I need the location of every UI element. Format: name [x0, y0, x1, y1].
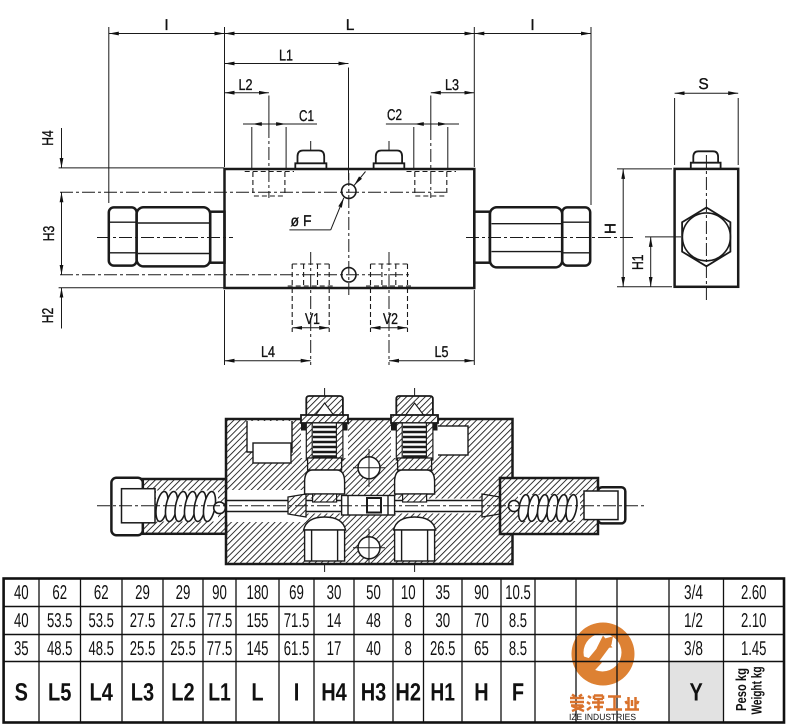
svg-text:L1: L1 [208, 679, 231, 707]
svg-text:H: H [603, 223, 620, 234]
svg-text:C2: C2 [387, 107, 402, 124]
svg-text:I: I [530, 17, 534, 34]
svg-text:Weight kg: Weight kg [750, 667, 766, 715]
svg-text:2.60: 2.60 [741, 582, 767, 604]
svg-text:25.5: 25.5 [170, 638, 196, 660]
svg-text:77.5: 77.5 [207, 610, 233, 632]
svg-text:L4: L4 [261, 344, 275, 361]
svg-text:3/8: 3/8 [684, 638, 703, 660]
svg-text:H4: H4 [40, 130, 57, 146]
svg-text:H3: H3 [361, 679, 387, 707]
svg-text:C1: C1 [299, 108, 314, 125]
svg-text:40: 40 [14, 582, 29, 604]
svg-text:F: F [512, 679, 524, 707]
svg-text:26.5: 26.5 [430, 638, 456, 660]
svg-text:L1: L1 [279, 48, 293, 65]
svg-text:53.5: 53.5 [47, 610, 73, 632]
svg-text:S: S [698, 76, 708, 93]
svg-text:61.5: 61.5 [284, 638, 310, 660]
svg-text:I: I [294, 679, 300, 707]
svg-text:8: 8 [405, 610, 412, 632]
svg-text:S: S [15, 679, 28, 707]
svg-text:30: 30 [327, 582, 342, 604]
svg-text:77.5: 77.5 [207, 638, 233, 660]
svg-text:L2: L2 [239, 77, 253, 94]
svg-text:27.5: 27.5 [170, 610, 196, 632]
svg-text:14: 14 [327, 610, 342, 632]
svg-text:17: 17 [327, 638, 342, 660]
svg-text:10.5: 10.5 [505, 582, 531, 604]
svg-text:71.5: 71.5 [284, 610, 310, 632]
svg-text:62: 62 [94, 582, 109, 604]
svg-text:V2: V2 [383, 311, 398, 328]
svg-text:L5: L5 [435, 344, 449, 361]
svg-text:IZE INDUSTRIES: IZE INDUSTRIES [569, 712, 636, 722]
svg-text:29: 29 [176, 582, 191, 604]
svg-text:90: 90 [474, 582, 489, 604]
svg-text:L4: L4 [90, 679, 113, 707]
svg-text:25.5: 25.5 [130, 638, 156, 660]
svg-text:3/4: 3/4 [684, 582, 703, 604]
svg-text:L: L [251, 679, 263, 707]
svg-text:65: 65 [474, 638, 489, 660]
svg-text:H3: H3 [41, 226, 58, 242]
svg-text:69: 69 [289, 582, 304, 604]
svg-text:H: H [474, 679, 488, 707]
svg-text:48.5: 48.5 [88, 638, 114, 660]
svg-text:H2: H2 [40, 308, 57, 324]
svg-text:L3: L3 [445, 77, 459, 94]
svg-text:8.5: 8.5 [509, 610, 527, 632]
svg-text:35: 35 [435, 582, 450, 604]
svg-text:90: 90 [212, 582, 227, 604]
svg-text:L2: L2 [171, 679, 194, 707]
svg-text:L: L [346, 17, 355, 34]
svg-text:H1: H1 [630, 255, 647, 271]
svg-text:8.5: 8.5 [509, 638, 527, 660]
svg-text:Peso kg: Peso kg [734, 668, 750, 711]
svg-text:2.10: 2.10 [741, 610, 767, 632]
svg-text:27.5: 27.5 [130, 610, 156, 632]
svg-text:35: 35 [14, 638, 29, 660]
svg-text:48.5: 48.5 [47, 638, 73, 660]
svg-text:H2: H2 [395, 679, 421, 707]
svg-text:180: 180 [247, 582, 269, 604]
svg-text:40: 40 [366, 638, 381, 660]
svg-text:50: 50 [366, 582, 381, 604]
svg-text:8: 8 [405, 638, 412, 660]
svg-text:L3: L3 [131, 679, 154, 707]
svg-text:V1: V1 [305, 311, 320, 328]
svg-text:ø F: ø F [291, 213, 312, 230]
svg-text:10: 10 [401, 582, 416, 604]
svg-text:1/2: 1/2 [684, 610, 703, 632]
svg-text:H4: H4 [321, 679, 347, 707]
svg-text:155: 155 [247, 610, 269, 632]
svg-text:H1: H1 [430, 679, 455, 707]
svg-text:29: 29 [135, 582, 150, 604]
svg-text:30: 30 [435, 610, 450, 632]
svg-text:Y: Y [690, 679, 704, 707]
svg-text:62: 62 [52, 582, 67, 604]
svg-text:145: 145 [247, 638, 269, 660]
svg-text:I: I [164, 17, 168, 34]
svg-text:53.5: 53.5 [88, 610, 114, 632]
svg-text:40: 40 [14, 610, 29, 632]
svg-text:L5: L5 [48, 679, 71, 707]
svg-text:70: 70 [474, 610, 489, 632]
svg-text:1.45: 1.45 [741, 638, 767, 660]
svg-text:48: 48 [366, 610, 381, 632]
